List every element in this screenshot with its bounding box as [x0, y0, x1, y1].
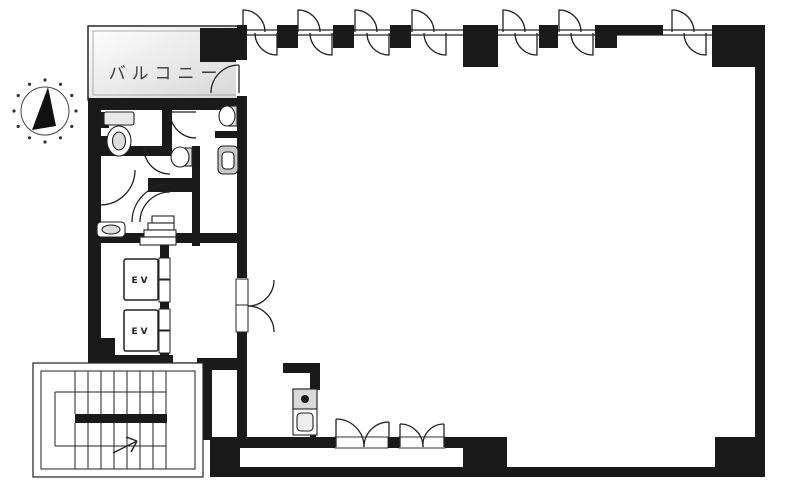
urinal-icon [219, 106, 237, 126]
toilet-icon [104, 112, 134, 156]
door-swing-icon [100, 170, 135, 205]
north-arrow-icon [12, 78, 77, 143]
washlet-toilet-icon [218, 146, 238, 174]
elevator-core: EV EV [124, 259, 158, 351]
door-swing-icon [170, 112, 196, 138]
staircase [33, 363, 203, 477]
service-steps-icon [140, 216, 176, 245]
stair-landing [75, 414, 167, 423]
elevator-label: EV [131, 276, 150, 286]
mop-sink-icon [97, 222, 125, 237]
double-door-swing-icon [236, 279, 274, 332]
balcony-label: バルコニー [109, 64, 224, 84]
elevator-label: EV [131, 327, 150, 337]
sink-icon [171, 147, 192, 167]
top-wall-glazing [237, 30, 760, 35]
floor-plan: EV EV [0, 0, 787, 500]
kitchenette-icon [293, 389, 317, 435]
floor-plan-drawing: EV EV [0, 0, 787, 500]
